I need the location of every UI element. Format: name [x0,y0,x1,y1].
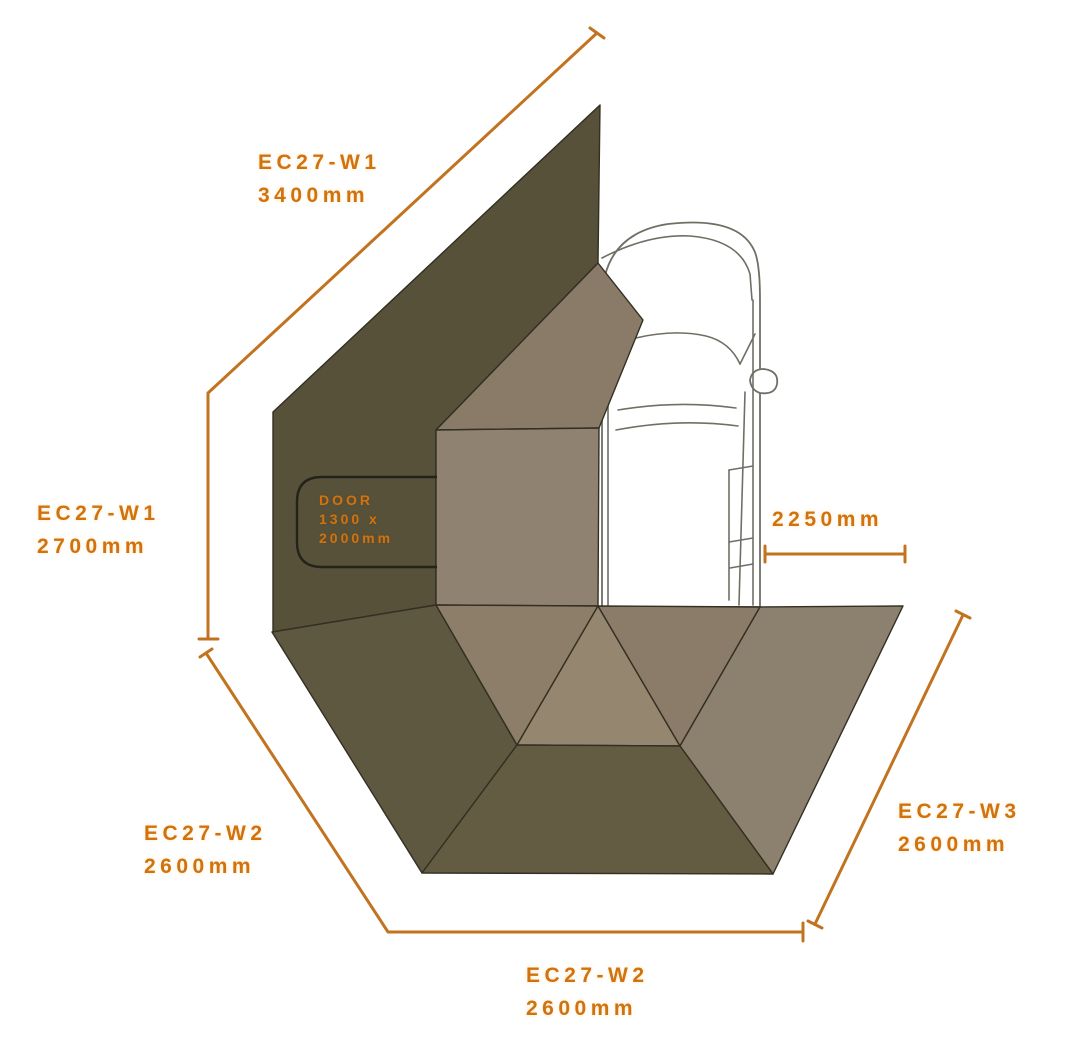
diagram-canvas [0,0,1075,1048]
label-w1-top: EC27-W1 3400mm [258,146,381,212]
label-w2-left-value: 2600mm [144,850,267,883]
label-w1-top-value: 3400mm [258,179,381,212]
label-w1-left-code: EC27-W1 [37,497,160,530]
label-door-height: 2000mm [319,529,393,548]
label-w3: EC27-W3 2600mm [898,795,1021,861]
awning-panels [272,105,903,874]
label-door-width: 1300 x [319,510,393,529]
vehicle-top-view [602,222,777,607]
label-w2-bottom-value: 2600mm [526,992,649,1025]
label-door-title: DOOR [319,491,393,510]
label-w1-left-value: 2700mm [37,530,160,563]
label-w2-bottom-code: EC27-W2 [526,959,649,992]
label-w3-code: EC27-W3 [898,795,1021,828]
label-w3-value: 2600mm [898,828,1021,861]
awning-side-panel [436,428,599,606]
label-w2-left: EC27-W2 2600mm [144,817,267,883]
label-w2-left-code: EC27-W2 [144,817,267,850]
dim-tick-w2-left-top [200,649,212,657]
label-door: DOOR 1300 x 2000mm [319,491,393,548]
label-vehicle-offset: 2250mm [772,503,883,536]
label-w2-bottom: EC27-W2 2600mm [526,959,649,1025]
awning-floorplan-diagram: EC27-W1 3400mm EC27-W1 2700mm 2250mm EC2… [0,0,1075,1048]
label-w1-top-code: EC27-W1 [258,146,381,179]
label-w1-left: EC27-W1 2700mm [37,497,160,563]
label-vehicle-offset-value: 2250mm [772,503,883,536]
vehicle-body-outline [602,222,760,607]
vehicle-side-mirror [750,369,777,393]
